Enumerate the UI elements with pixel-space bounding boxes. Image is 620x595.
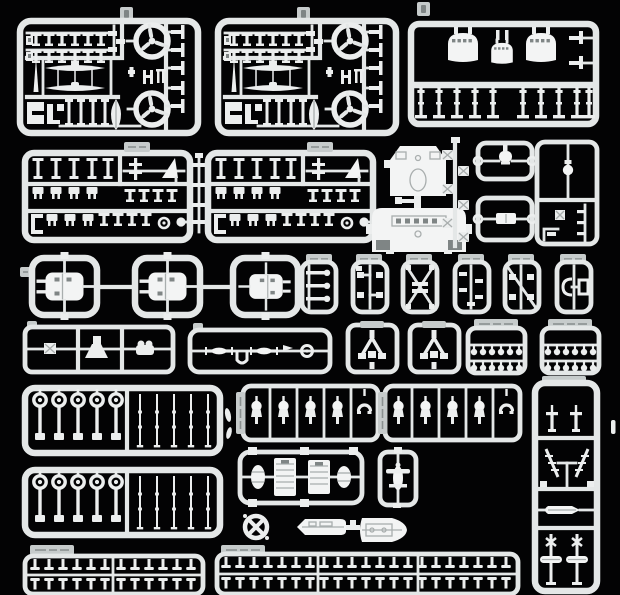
oval-platform: [337, 466, 351, 488]
photo-of-model-sprues: Injection-molded model kit sprues: [0, 0, 620, 595]
bridge-deck-upper: [390, 146, 446, 196]
label-tab: [30, 545, 74, 555]
hang-tab: [417, 2, 430, 16]
ring-part: [243, 514, 269, 540]
oval-platform: [251, 465, 265, 489]
